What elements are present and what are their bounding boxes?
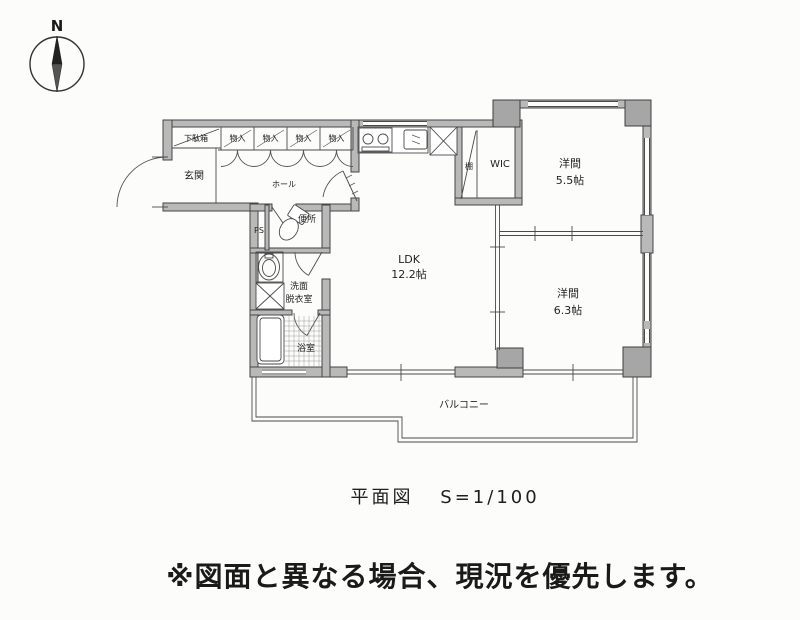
label-entrance: 玄関 <box>184 169 204 182</box>
caption-scale: S=1/100 <box>440 487 539 508</box>
caption: 平面図 S=1/100 <box>351 487 540 508</box>
label-ldk-name: LDK <box>398 253 421 266</box>
washing-machine-space-icon <box>256 283 284 309</box>
label-western-room-2-size: 6.3帖 <box>554 304 583 317</box>
label-western-room-2-name: 洋間 <box>557 286 579 300</box>
compass-icon: N <box>30 17 84 92</box>
bathtub-icon <box>257 315 284 364</box>
refrigerator-space-icon <box>430 127 457 155</box>
label-western-room-1-size: 5.5帖 <box>556 174 585 187</box>
label-ldk-size: 12.2帖 <box>391 268 427 281</box>
floor-plan: 下駄箱 物入 物入 物入 物入 玄関 ホール 便所 PS 洗面 脱衣室 浴室 L… <box>117 100 653 442</box>
bath-tile-floor <box>284 316 322 367</box>
label-closet-2: 物入 <box>263 133 279 143</box>
washbasin-icon <box>256 252 283 282</box>
label-closet-3: 物入 <box>296 133 312 143</box>
closet-band <box>218 127 353 167</box>
label-balcony: バルコニー <box>439 399 489 411</box>
compass-north-label: N <box>51 17 64 35</box>
label-bathroom: 浴室 <box>297 342 315 354</box>
label-western-room-1-name: 洋間 <box>559 156 581 170</box>
label-hall: ホール <box>272 180 296 189</box>
caption-title: 平面図 <box>351 487 414 508</box>
label-washroom-2: 脱衣室 <box>285 293 312 305</box>
kitchen-counter <box>358 127 428 153</box>
floor-plan-page: N <box>0 0 800 620</box>
notice-text: ※図面と異なる場合、現況を優先します。 <box>166 560 713 593</box>
label-shelf: 棚 <box>465 161 473 171</box>
room-labels: 下駄箱 物入 物入 物入 物入 玄関 ホール 便所 PS 洗面 脱衣室 浴室 L… <box>184 133 584 411</box>
label-washroom-1: 洗面 <box>290 280 308 292</box>
label-closet-1: 物入 <box>230 133 246 143</box>
label-wic: WIC <box>490 159 510 170</box>
label-shoe-cabinet: 下駄箱 <box>184 133 208 143</box>
label-pipe-space: PS <box>254 226 264 235</box>
label-closet-4: 物入 <box>329 133 345 143</box>
label-toilet: 便所 <box>298 213 316 225</box>
